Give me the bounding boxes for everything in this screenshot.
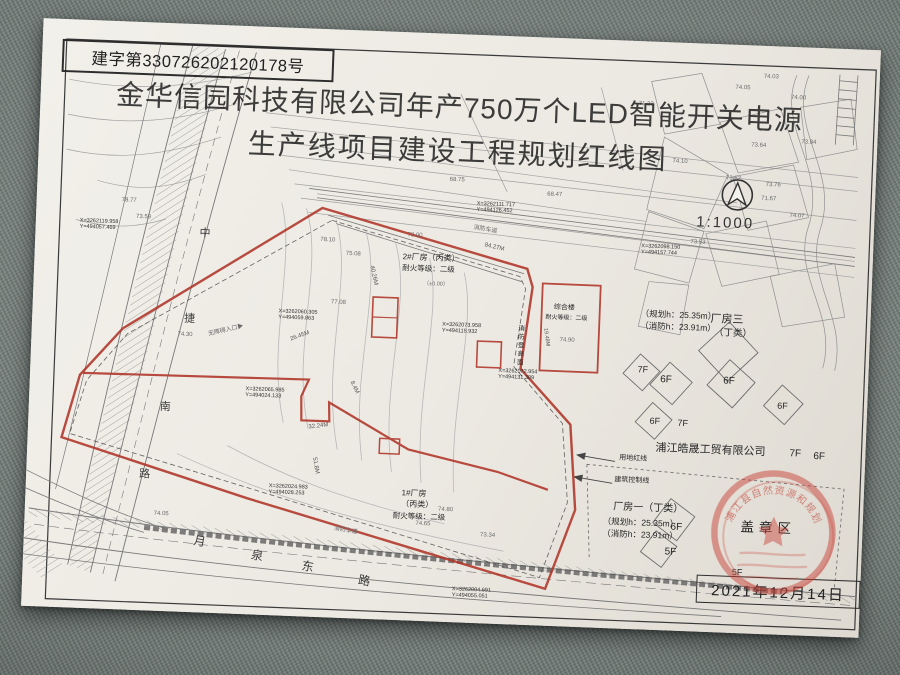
map-label: 消防登高面 xyxy=(515,324,524,367)
map-label: 75.08 xyxy=(346,251,361,259)
map-label: 7F xyxy=(789,448,801,460)
map-label: 1#厂房 xyxy=(401,488,426,498)
map-label: 6F xyxy=(670,522,682,534)
map-label: 7F xyxy=(637,364,648,375)
map-label: 51.8M xyxy=(310,457,320,475)
map-label: X=3262111.717 Y=494126.452 xyxy=(476,201,515,215)
map-label: 84.27M xyxy=(484,242,505,253)
map-label: 74.30 xyxy=(177,332,192,340)
map-label: 东 xyxy=(301,558,315,574)
map-label: 73.59 xyxy=(136,214,151,222)
map-label: 用地红线 xyxy=(619,455,647,464)
scale-label: 1:1000 xyxy=(696,213,755,232)
photo-background: 建字第330726202120178号 金华信园科技有限公司年产750万个LED… xyxy=(0,0,900,675)
map-label: 6F xyxy=(777,401,788,412)
map-label: 6F xyxy=(723,375,735,387)
label-layer: 建字第330726202120178号 金华信园科技有限公司年产750万个LED… xyxy=(21,18,881,638)
map-label: 耐火等级：二级 xyxy=(402,264,455,275)
map-label: 浦江皓晟工贸有限公司 xyxy=(655,442,765,459)
map-label: 8.4M xyxy=(348,380,360,395)
map-label: 5F xyxy=(664,546,676,558)
map-label: 74.90 xyxy=(559,337,574,345)
stamp-area-label: 盖章区 xyxy=(740,515,796,537)
map-label: 泉 xyxy=(250,548,264,564)
paper-sheet: 建字第330726202120178号 金华信园科技有限公司年产750万个LED… xyxy=(21,18,881,638)
map-label: 无障碍入口▶ xyxy=(208,324,245,339)
map-label: 消防车道 xyxy=(473,225,498,236)
map-label: 6F xyxy=(813,451,825,463)
map-label: X=3262004.691 Y=494055.051 xyxy=(452,586,491,600)
map-label: 78.77 xyxy=(122,197,137,205)
map-label: 71.67 xyxy=(761,196,776,204)
map-label: 73.76 xyxy=(766,182,781,190)
map-label: 7F xyxy=(677,418,688,429)
map-label: 74.65 xyxy=(415,521,430,529)
map-label: 消防车道 xyxy=(333,526,358,537)
date-box: 2021年12月14日 xyxy=(696,575,861,609)
date-text: 2021年12月14日 xyxy=(711,579,845,605)
map-label: （消防h：23.91m） xyxy=(640,320,716,333)
map-label: 74.05 xyxy=(735,85,750,93)
map-label: 南 xyxy=(159,401,170,414)
map-label: 6F xyxy=(649,416,660,427)
map-label: 厂房一（丁类） xyxy=(613,501,683,515)
map-label: 综合楼 xyxy=(554,304,575,313)
map-label: X=3262119.958 Y=494057.469 xyxy=(79,218,118,232)
map-label: 26.45M xyxy=(290,330,311,343)
map-label: 2#厂房（丙类） xyxy=(403,252,460,264)
map-label: 40.26M xyxy=(367,265,378,286)
map-label: X=3262060.305 Y=494059.863 xyxy=(278,308,317,322)
map-label: X=3262073.958 Y=494115.932 xyxy=(442,322,481,336)
map-label: 捷 xyxy=(184,313,195,326)
map-label: 月 xyxy=(192,533,206,549)
map-label: 78.00 xyxy=(407,232,422,240)
map-label: （规划h：25.35m） xyxy=(641,308,717,321)
map-label: 74.05 xyxy=(153,511,168,519)
map-label: X=3262065.985 Y=494024.133 xyxy=(245,386,284,400)
map-label: （丁类） xyxy=(714,327,752,340)
map-label: 68.75 xyxy=(450,177,465,185)
map-label: 74.03 xyxy=(764,74,779,82)
map-label: 建筑控制线 xyxy=(614,476,649,486)
map-label: 73.34 xyxy=(480,532,495,540)
map-label: 耐火等级：二级 xyxy=(545,315,587,324)
map-label: （±0.00） xyxy=(424,281,449,288)
map-label: 路 xyxy=(139,468,150,481)
map-label: 74.80 xyxy=(438,507,453,515)
map-label: （丙类） xyxy=(401,499,433,510)
map-label: （规划h：25.35m） xyxy=(603,516,679,529)
map-label: 32.24M xyxy=(308,422,329,431)
map-label: X=3262024.983 Y=494028.253 xyxy=(268,483,307,497)
map-label: 73.53 xyxy=(690,239,705,247)
map-label: 78.10 xyxy=(320,237,335,245)
map-label: （消防h：23.91m） xyxy=(602,528,678,541)
map-label: X=3262072.954 Y=494131.309 xyxy=(498,368,537,382)
map-label: X=3262098.150 Y=494157.744 xyxy=(641,243,680,257)
map-label: 中 xyxy=(199,227,210,240)
map-label: 6F xyxy=(660,374,672,386)
map-label: 74.07 xyxy=(789,213,804,221)
map-label: 19.48M xyxy=(542,328,551,347)
map-label: 68.47 xyxy=(547,192,562,200)
map-label: 77.08 xyxy=(331,299,346,307)
map-label: 路 xyxy=(357,573,371,589)
